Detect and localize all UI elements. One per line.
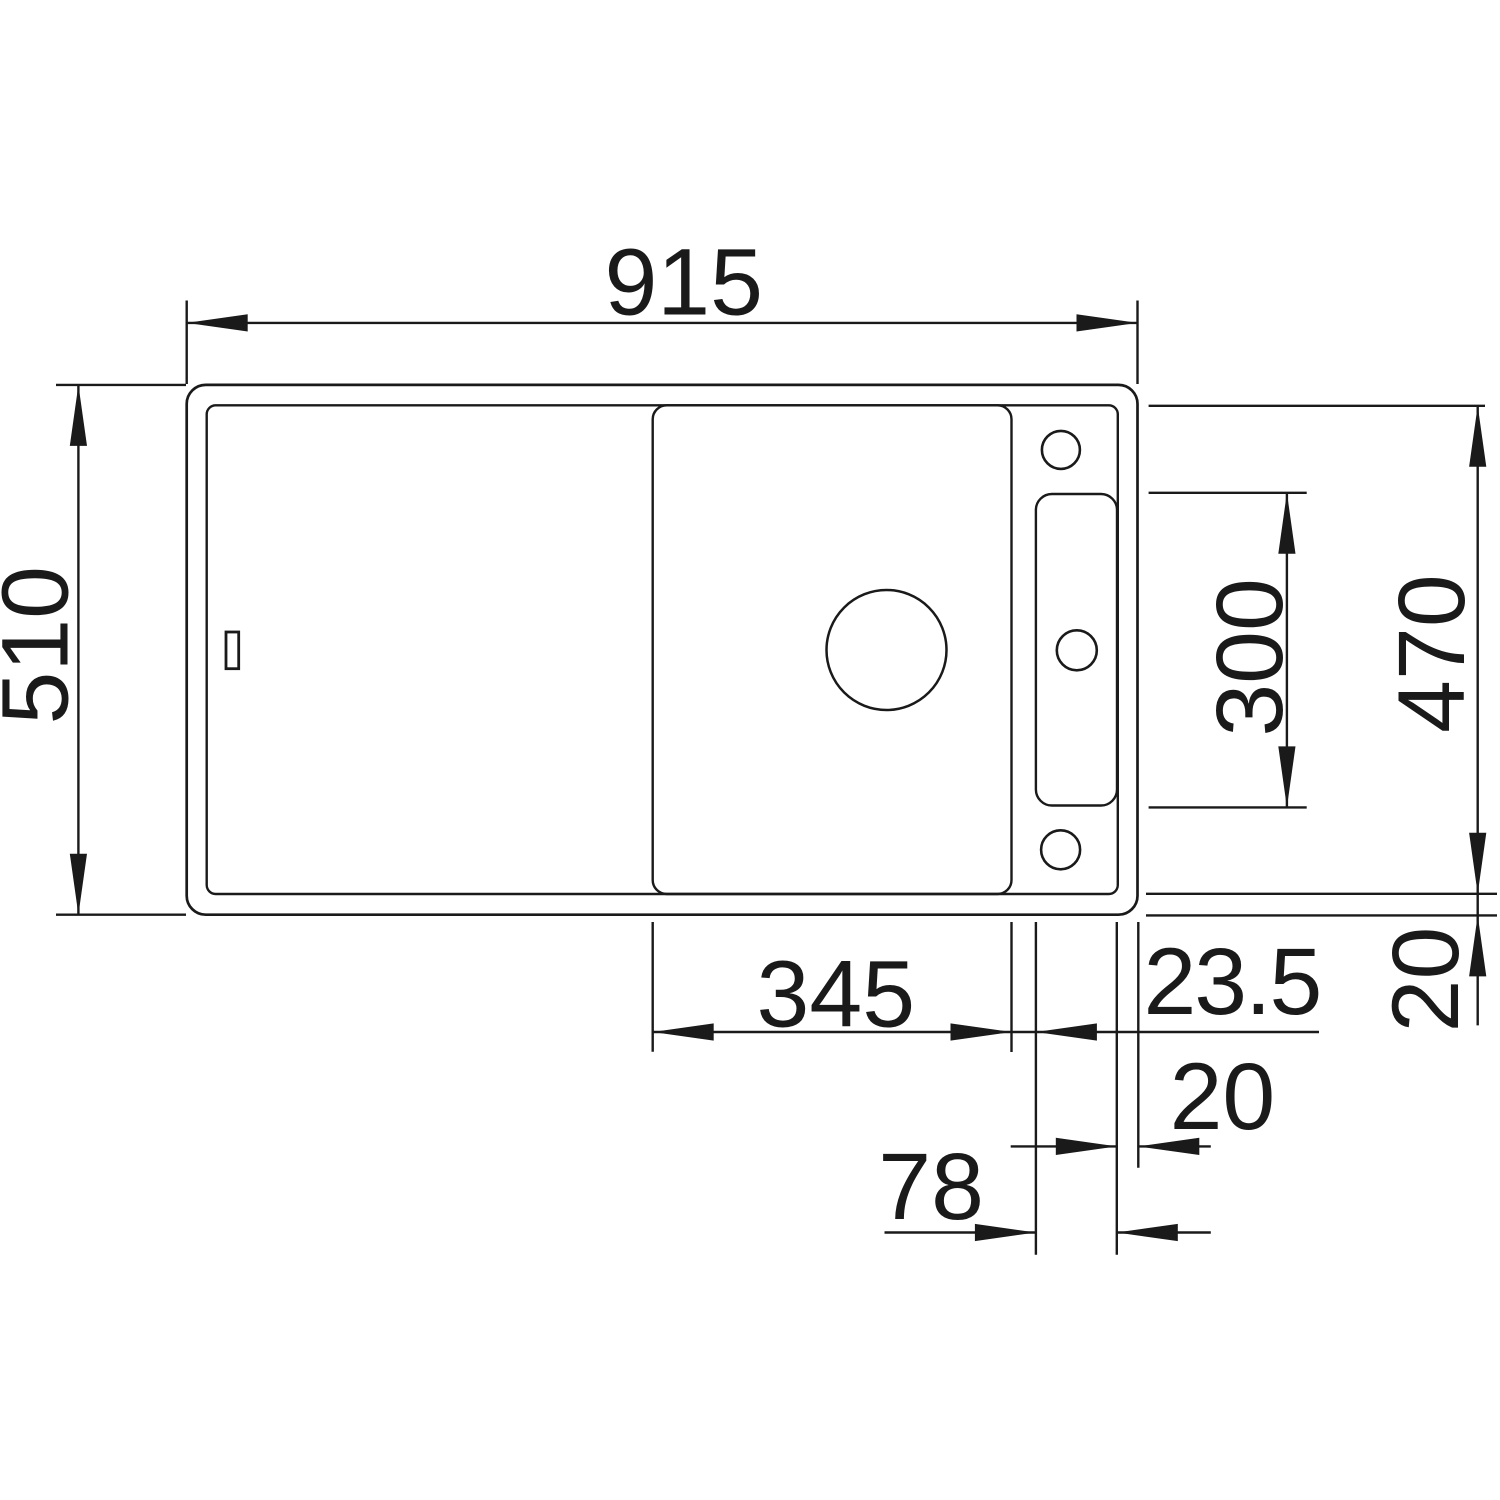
svg-text:345: 345 xyxy=(757,942,916,1048)
svg-text:915: 915 xyxy=(604,230,763,336)
svg-text:510: 510 xyxy=(0,566,89,725)
svg-text:470: 470 xyxy=(1379,574,1485,733)
svg-text:78: 78 xyxy=(878,1134,984,1240)
svg-text:20: 20 xyxy=(1170,1044,1276,1150)
svg-text:20: 20 xyxy=(1373,927,1479,1033)
svg-text:300: 300 xyxy=(1197,578,1303,737)
svg-text:23.5: 23.5 xyxy=(1143,929,1320,1035)
